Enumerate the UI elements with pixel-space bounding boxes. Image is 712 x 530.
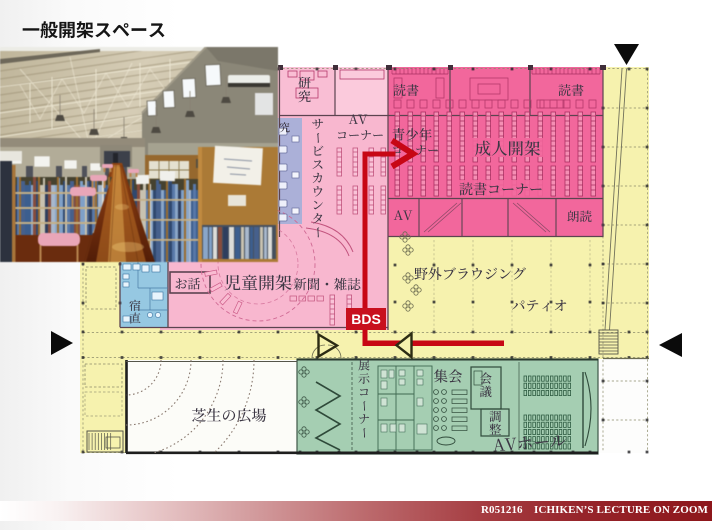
svg-text:BDS: BDS — [351, 311, 381, 327]
